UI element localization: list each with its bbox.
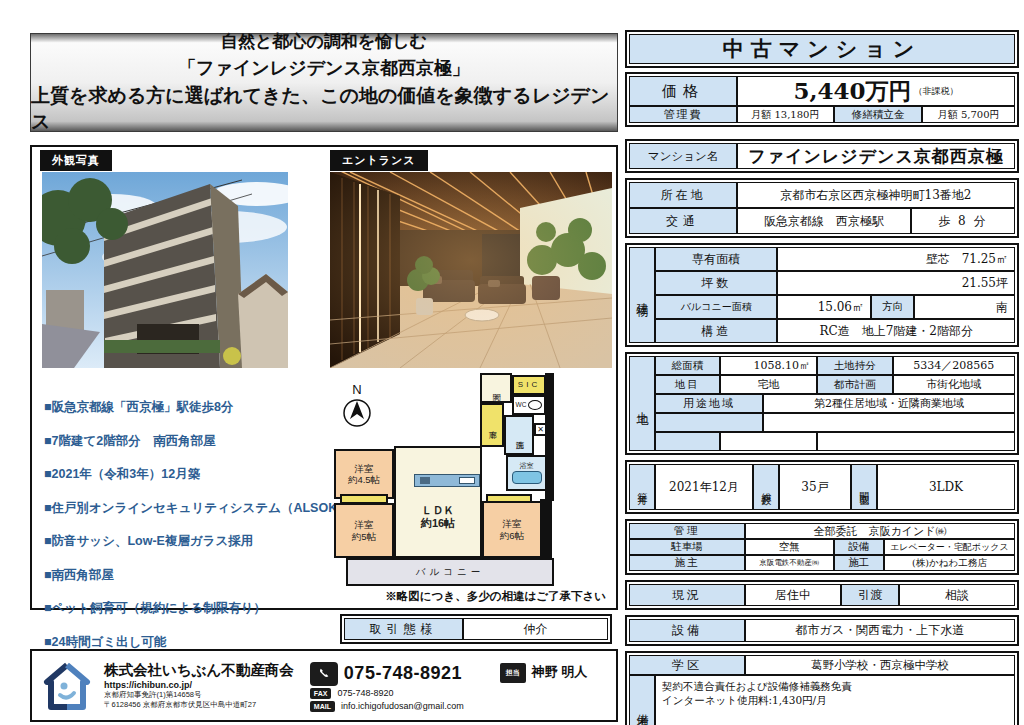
mansion-name-label: マンション名 — [629, 143, 737, 169]
balcony-area-value: 15.06㎡ — [777, 295, 871, 319]
total-area-value: 1058.10㎡ — [720, 356, 817, 375]
room-entrance: 玄関 — [480, 373, 512, 403]
builder-value: (株)かねわ工務店 — [884, 555, 1015, 571]
listing-detail-column: 中古マンション 価格 5,440万円 （非課税） 管理費 月額 13,180円 … — [625, 30, 1019, 725]
land-empty-value — [763, 413, 1015, 432]
structure-label: 構造 — [655, 319, 777, 343]
feature-item: ■住戸別オンラインセキュリティシステム（ALSOK） — [44, 500, 332, 517]
address-label: 所在地 — [629, 182, 737, 208]
entrance-photo-label: エントランス — [330, 150, 428, 171]
banner-line-3: 上質を求める方に選ばれてきた、この地の価値を象徴するレジデンス — [31, 83, 617, 135]
built-date-label: 築年月 — [629, 464, 655, 510]
layout-value: 3LDK — [877, 464, 1015, 510]
zoning-value: 第2種住居地域・近隣商業地域 — [763, 394, 1015, 413]
land-group-label: 土地 — [629, 356, 655, 451]
price-tax-note: （非課税） — [914, 85, 959, 98]
building-table: 建物 専有面積 壁芯 71.25㎡ 坪数 21.55坪 バルコニー面積 15.0… — [625, 243, 1019, 347]
price-value: 5,440万円 — [794, 76, 912, 106]
overview-table: 築年月 2021年12月 総戸数 35戸 間取図 3LDK — [625, 460, 1019, 514]
exclusive-area-label: 専有面積 — [655, 247, 777, 271]
total-units-value: 35戸 — [779, 464, 851, 510]
room-washroom-label: 洗面 — [514, 434, 524, 436]
land-empty-label — [655, 432, 720, 451]
room-bedroom-4_5: 洋室 約4.5帖 — [334, 449, 394, 499]
transaction-type-value: 仲介 — [463, 618, 608, 640]
address-value: 京都市右京区西京極神明町13番地2 — [737, 182, 1015, 208]
room-wc-label: WC — [516, 401, 527, 409]
fax-badge: FAX — [310, 688, 332, 699]
balcony: バルコニー — [346, 558, 554, 586]
utilities-value: 都市ガス・関西電力・上下水道 — [745, 619, 1015, 642]
city-planning-value: 市街化地域 — [893, 375, 1015, 394]
stove-icon — [420, 477, 430, 484]
room-hallway-label: 廊下 — [487, 424, 497, 426]
company-license: 京都府知事免許(1)第14658号 — [104, 690, 294, 700]
room-bedroom-4_5-size: 約4.5帖 — [348, 474, 380, 485]
wall-segment — [545, 373, 554, 501]
land-empty-label — [655, 413, 763, 432]
tsubo-value: 21.55坪 — [777, 271, 1015, 295]
title-banner: 自然と都心の調和を愉しむ 「ファインレジデンス京都西京極」 上質を求める方に選ば… — [30, 33, 618, 132]
land-category-label: 地目 — [655, 375, 720, 394]
svg-text:N: N — [352, 382, 361, 397]
room-sic: SIC — [512, 375, 546, 395]
status-table: 現況 居住中 引渡 相談 — [625, 580, 1019, 610]
room-ldk: ＬＤＫ 約16帖 — [394, 446, 482, 558]
agent-badge: 担当 — [500, 663, 526, 683]
location-table: 所在地 京都市右京区西京極神明町13番地2 交通 阪急京都線 西京極駅 歩 8 … — [625, 178, 1019, 238]
fax-number: 075-748-8920 — [337, 688, 393, 698]
total-units-label: 総戸数 — [753, 464, 779, 510]
current-status-value: 居住中 — [745, 584, 842, 606]
land-category-value: 宅地 — [720, 375, 817, 394]
feature-item: ■阪急京都線「西京極」駅徒歩8分 — [44, 399, 332, 416]
management-value: 全部委託 京阪カインド㈱ — [745, 523, 1015, 539]
current-status-label: 現況 — [629, 584, 745, 606]
banner-line-1: 自然と都心の調和を愉しむ — [221, 30, 427, 53]
exterior-photo — [42, 172, 288, 368]
handover-label: 引渡 — [841, 584, 899, 606]
company-url: https://ichibun.co.jp/ — [104, 680, 294, 690]
listing-type-table: 中古マンション — [625, 30, 1019, 68]
management-table: 管理 全部委託 京阪カインド㈱ 駐車場 空無 設備 エレベーター・宅配ボックス … — [625, 519, 1019, 575]
feature-item: ■防音サッシ、Low-E複層ガラス採用 — [44, 533, 332, 550]
room-bath: 浴室 — [506, 455, 547, 491]
listing-type-header: 中古マンション — [629, 34, 1015, 64]
company-info: 株式会社いちぶん不動産商会 https://ichibun.co.jp/ 京都府… — [104, 661, 294, 710]
balcony-area-label: バルコニー面積 — [655, 295, 777, 319]
balcony-label: バルコニー — [416, 566, 484, 577]
mail-address: info.ichigofudosan@gmail.com — [341, 701, 464, 711]
room-sic-label: SIC — [518, 380, 540, 390]
agent-name: 神野 明人 — [532, 663, 588, 681]
feature-item: ■ペット飼育可（規約による制限有り） — [44, 600, 332, 617]
feature-item: ■7階建て2階部分 南西角部屋 — [44, 433, 332, 450]
room-bedroom-5-label: 洋室 — [355, 519, 374, 530]
kitchen-counter — [414, 474, 480, 487]
parking-value: 空無 — [745, 539, 834, 555]
school-district-value: 葛野小学校・西京極中学校 — [745, 655, 1015, 675]
compass-icon: N — [340, 381, 374, 431]
school-remarks-table: 学区 葛野小学校・西京極中学校 備考 契約不適合責任および設備修補義務免責 イン… — [625, 651, 1019, 725]
floorplan-note: ※略図につき、多少の相違はご了承下さい — [385, 589, 606, 604]
remarks-value: 契約不適合責任および設備修補義務免責 インターネット使用料:1,430円/月 — [655, 675, 1015, 725]
phone-number: 075-748-8921 — [344, 663, 462, 684]
building-group-label: 建物 — [629, 247, 655, 343]
access-label: 交通 — [629, 208, 737, 234]
utilities-table: 設備 都市ガス・関西電力・上下水道 — [625, 615, 1019, 646]
company-address: 〒6128456 京都府京都市伏見区中島中道町27 — [104, 700, 294, 710]
feature-item: ■南西角部屋 — [44, 567, 332, 584]
room-bedroom-5-size: 約5帖 — [352, 531, 376, 542]
exterior-photo-illustration — [42, 172, 288, 368]
remarks-line-1: 契約不適合責任および設備修補義務免責 — [662, 680, 852, 694]
management-fee-value: 月額 13,180円 — [737, 106, 834, 123]
company-logo-icon — [40, 659, 94, 713]
room-entrance-label: 玄関 — [491, 387, 501, 389]
kitchen-sink-icon — [459, 477, 475, 484]
room-bedroom-6: 洋室 約6帖 — [482, 501, 542, 558]
room-wc: WC — [512, 395, 546, 415]
parking-label: 駐車場 — [629, 539, 745, 555]
bathtub-icon — [512, 471, 542, 484]
room-bedroom-4_5-label: 洋室 — [355, 463, 374, 474]
transaction-type-table: 取引態様 仲介 — [340, 614, 612, 644]
mail-badge: MAIL — [310, 701, 335, 712]
builder-label: 施工 — [834, 555, 884, 571]
transaction-type-label: 取引態様 — [344, 618, 463, 640]
room-bedroom-6-size: 約6帖 — [500, 530, 524, 541]
price-value-cell: 5,440万円 （非課税） — [737, 76, 1015, 106]
room-ldk-size: 約16帖 — [421, 517, 455, 530]
remarks-label: 備考 — [629, 675, 655, 725]
utilities-label: 設備 — [629, 619, 745, 642]
banner-line-2: 「ファインレジデンス京都西京極」 — [178, 56, 470, 80]
school-district-label: 学区 — [629, 655, 745, 675]
total-area-label: 総面積 — [655, 356, 720, 375]
repair-reserve-label: 修繕積立金 — [834, 106, 923, 123]
direction-label: 方向 — [871, 295, 914, 319]
layout-label: 間取図 — [851, 464, 877, 510]
owner-label: 施主 — [629, 555, 745, 571]
access-line-value: 阪急京都線 西京極駅 — [737, 208, 911, 234]
equipment-value: エレベーター・宅配ボックス — [884, 539, 1015, 555]
land-empty-value — [817, 432, 1015, 451]
zoning-label: 用途地域 — [655, 394, 763, 413]
remarks-line-2: インターネット使用料:1,430円/月 — [662, 694, 827, 708]
exclusive-area-value: 壁芯 71.25㎡ — [777, 247, 1015, 271]
room-bedroom-5: 洋室 約5帖 — [334, 503, 394, 558]
access-walk-value: 歩 8 分 — [911, 208, 1015, 234]
left-main-panel: 外観写真 — [30, 145, 618, 610]
mansion-name-value: ファインレジデンス京都西京極 — [737, 143, 1015, 169]
room-hallway: 廊下 — [480, 403, 504, 447]
built-date-value: 2021年12月 — [655, 464, 753, 510]
feature-list: ■阪急京都線「西京極」駅徒歩8分 ■7階建て2階部分 南西角部屋 ■2021年（… — [44, 399, 332, 667]
floor-plan: N 玄関 SIC WC 廊下 洗面 ✕ 浴室 洋室 約4.5帖 — [334, 373, 562, 589]
structure-value: RC造 地上7階建・2階部分 — [777, 319, 1015, 343]
room-bedroom-6-label: 洋室 — [503, 518, 522, 529]
management-label: 管理 — [629, 523, 745, 539]
tsubo-label: 坪数 — [655, 271, 777, 295]
entrance-photo-illustration — [330, 172, 612, 368]
company-name: 株式会社いちぶん不動産商会 — [104, 661, 294, 680]
owner-value: 京阪電鉄不動産㈱ — [745, 555, 834, 571]
room-washroom: 洗面 — [504, 415, 534, 455]
handover-value: 相談 — [899, 584, 1015, 606]
feature-item: ■2021年（令和3年）12月築 — [44, 466, 332, 483]
direction-value: 南 — [914, 295, 1015, 319]
toilet-icon — [528, 400, 542, 410]
price-label: 価格 — [629, 76, 737, 106]
contact-info: 075-748-8921 FAX 075-748-8920 MAIL info.… — [310, 660, 464, 712]
feature-item: ■24時間ゴミ出し可能 — [44, 634, 332, 651]
exterior-photo-label: 外観写真 — [40, 150, 112, 171]
room-ldk-label: ＬＤＫ — [422, 504, 455, 517]
mansion-name-table: マンション名 ファインレジデンス京都西京極 — [625, 139, 1019, 173]
phone-icon — [310, 662, 338, 686]
land-share-value: 5334／208565 — [893, 356, 1015, 375]
entrance-photo — [330, 172, 612, 368]
land-table: 土地 総面積 1058.10㎡ 土地持分 5334／208565 地目 宅地 都… — [625, 352, 1019, 455]
repair-reserve-value: 月額 5,700円 — [922, 106, 1015, 123]
equipment-label: 設備 — [834, 539, 884, 555]
room-bath-label: 浴室 — [520, 462, 534, 470]
agent-info: 担当 神野 明人 — [500, 663, 588, 683]
price-table: 価格 5,440万円 （非課税） 管理費 月額 13,180円 修繕積立金 月額… — [625, 72, 1019, 127]
city-planning-label: 都市計画 — [817, 375, 893, 394]
land-share-label: 土地持分 — [817, 356, 893, 375]
land-empty-value — [720, 432, 817, 451]
management-fee-label: 管理費 — [629, 106, 737, 123]
company-footer: 株式会社いちぶん不動産商会 https://ichibun.co.jp/ 京都府… — [30, 649, 618, 722]
